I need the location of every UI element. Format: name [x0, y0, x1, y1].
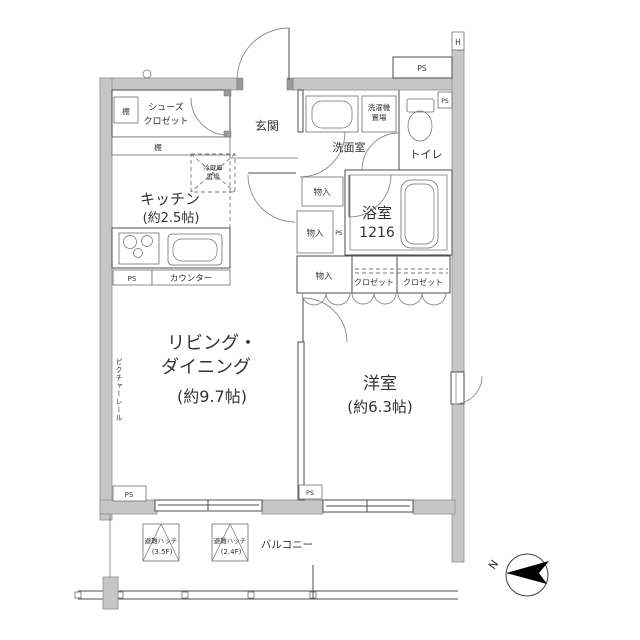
- partition-wall: [298, 298, 347, 500]
- entrance-label: 玄関: [255, 118, 279, 133]
- balcony-railing: [75, 514, 458, 609]
- fridge-label-2: 置場: [207, 172, 221, 181]
- hatch-2-floor: (2.4F): [221, 548, 242, 556]
- fridge-space: 冷蔵庫 置場: [191, 154, 235, 192]
- shelf-lower-label: 棚: [154, 142, 162, 152]
- closet-row-2-label: クロゼット: [403, 277, 443, 287]
- hatch-1-floor: (3.5F): [152, 548, 173, 556]
- entrance-door: [237, 28, 289, 80]
- balcony-label: バルコニー: [261, 539, 313, 551]
- north-label: N: [486, 558, 501, 572]
- shelf-lower-box: [112, 137, 230, 155]
- escape-hatch-1: 避難ハッチ (3.5F): [143, 524, 179, 561]
- toilet-bowl: [408, 111, 432, 141]
- closet-row-1-label: クロゼット: [354, 277, 394, 287]
- hatch-2-label: 避難ハッチ: [214, 536, 247, 545]
- shoes-closet-label-2: クロゼット: [143, 115, 188, 127]
- shoes-closet-area: シューズ クロゼット 棚 棚: [112, 90, 231, 155]
- western-room-label: 洋室: [363, 374, 397, 394]
- living-size-label: (約9.7帖): [177, 387, 247, 406]
- bath-label: 浴室: [362, 204, 392, 222]
- kitchen-ps-label: PS: [128, 275, 137, 283]
- entrance-hall: 玄関: [230, 118, 298, 222]
- kitchen-label: キッチン: [140, 190, 200, 208]
- western-room-size-label: (約6.3帖): [347, 398, 413, 416]
- wall-vent-circle: [143, 70, 151, 78]
- picture-rail-label: ピクチャーレール: [115, 358, 123, 422]
- hatch-1-label: 避難ハッチ: [145, 536, 178, 545]
- washroom-label: 洗面室: [333, 140, 366, 154]
- kitchen-size-label: (約2.5帖): [143, 211, 200, 226]
- storage-hall-label: 物入: [313, 187, 331, 198]
- living-ps-label: PS: [125, 491, 134, 499]
- escape-hatch-2: 避難ハッチ (2.4F): [212, 524, 248, 561]
- toilet-label: トイレ: [410, 148, 443, 161]
- bath-area: 浴室 1216: [345, 170, 452, 255]
- storage-row-label: 物入: [315, 271, 333, 282]
- storage-mid-label: 物入: [306, 228, 324, 239]
- washer-label-2: 置場: [372, 112, 387, 122]
- closet-row: 物入 クロゼット クロゼット: [297, 256, 450, 305]
- shoes-closet-label-1: シューズ: [148, 101, 184, 113]
- bathtub: [401, 180, 438, 248]
- floor-plan-page: シューズ クロゼット 棚 棚 玄関 冷蔵庫 置場 キッチン (約2.5帖) PS…: [0, 0, 640, 640]
- compass: N: [486, 554, 549, 596]
- counter-label: カウンター: [170, 274, 213, 284]
- washbasin: [306, 96, 358, 132]
- top-ps-label: PS: [417, 64, 427, 73]
- toilet-tank: [407, 99, 434, 112]
- floor-plan-drawing: シューズ クロゼット 棚 棚 玄関 冷蔵庫 置場 キッチン (約2.5帖) PS…: [0, 0, 640, 640]
- shelf-upper-label: 棚: [122, 106, 130, 116]
- living-dining-area: リビング・ ダイニング (約9.7帖) ピクチャーレール PS: [113, 333, 257, 501]
- side-window: [451, 372, 482, 404]
- washer-label-1: 洗濯機: [368, 102, 391, 112]
- balcony-area: 避難ハッチ (3.5F) 避難ハッチ (2.4F) バルコニー: [75, 514, 458, 609]
- living-label-2: ダイニング: [161, 357, 251, 378]
- living-label-1: リビング・: [167, 333, 257, 354]
- balcony-pillar: [103, 577, 118, 609]
- toilet-ps-label: PS: [441, 98, 449, 105]
- washroom-ps-label: PS: [335, 230, 343, 237]
- western-ps-label: PS: [306, 489, 314, 497]
- bath-size-label: 1216: [359, 225, 395, 241]
- hydrant-label: H: [455, 38, 461, 47]
- fridge-label-1: 冷蔵庫: [203, 163, 223, 172]
